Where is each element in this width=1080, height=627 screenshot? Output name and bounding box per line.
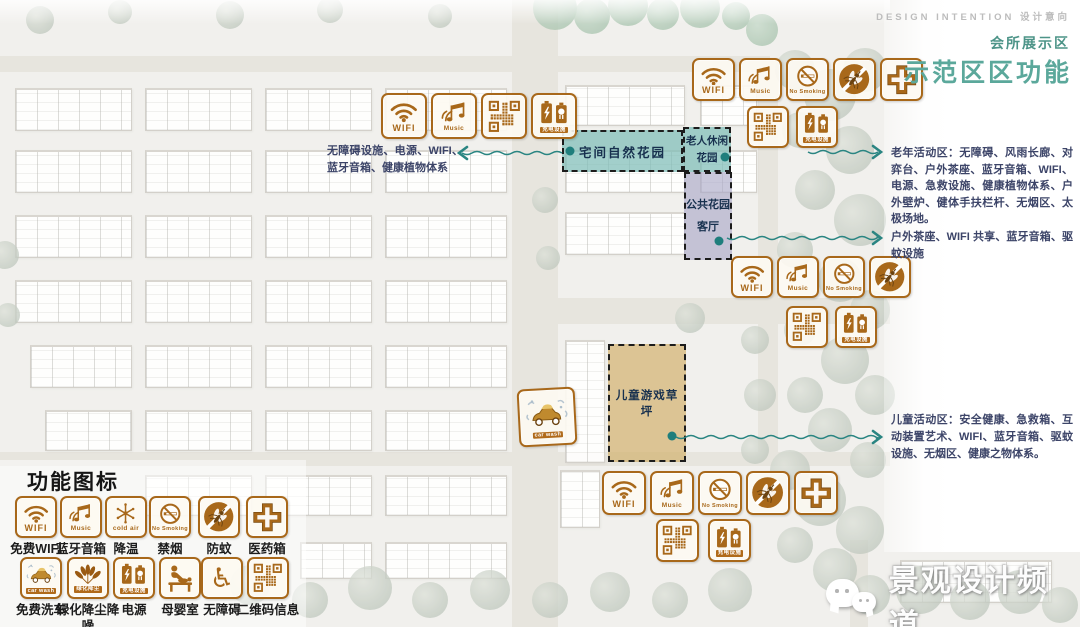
legend-label: 电源	[121, 603, 146, 619]
header-subtitle: 会所展示区	[990, 33, 1070, 53]
annotation-tea-wifi: 户外茶座、WIFI 共享、蓝牙音箱、驱蚊设施	[891, 229, 1073, 262]
mosquito-repellent-icon	[833, 58, 876, 101]
music-icon: Music	[739, 58, 782, 101]
wifi-icon: WIFI	[602, 471, 646, 515]
zone-elderly-garden-label: 老人休闲花园	[685, 133, 729, 167]
car-wash-icon: car wash	[517, 387, 578, 448]
icon-inner-label: car wash	[532, 431, 563, 439]
plan-icon-group-left: WIFIMusic充电设施	[381, 93, 577, 139]
icon-inner-label: 充电设施	[803, 137, 831, 143]
legend-label: 防蚊	[206, 542, 231, 558]
icon-inner-label: WIFI	[702, 86, 725, 96]
icon-inner-label: Music	[788, 285, 808, 292]
icon-inner-label: WIFI	[741, 284, 764, 294]
plan-icon-group-bottom: WIFIMusicNo Smoking	[602, 471, 838, 515]
legend-item: 二维码信息	[234, 557, 302, 619]
zone-children-lawn: 儿童游戏草坪	[608, 344, 686, 462]
page-title: 示范区区功能	[904, 53, 1072, 89]
charging-battery-icon: 充电设施	[835, 306, 877, 348]
icon-inner-label: No Smoking	[152, 526, 188, 532]
qr-code-icon	[481, 93, 527, 139]
icon-inner-label: No Smoking	[789, 89, 825, 95]
no-smoking-icon: No Smoking	[786, 58, 829, 101]
music-icon: Music	[777, 256, 819, 298]
legend-item: 医药箱	[233, 496, 301, 558]
qr-code-icon	[786, 306, 828, 348]
medical-cross-icon	[246, 496, 288, 538]
wifi-icon: WIFI	[731, 256, 773, 298]
header-design-intention: DESIGN INTENTION 设计意向	[876, 9, 1070, 23]
medical-cross-icon	[794, 471, 838, 515]
icon-inner-label: car wash	[26, 588, 57, 594]
wifi-icon: WIFI	[381, 93, 427, 139]
plan-icon-group-bottom-row2: 充电设施	[656, 519, 751, 562]
plan-icon-group-top-right: WIFIMusicNo Smoking	[692, 58, 923, 101]
zone-children-lawn-label: 儿童游戏草坪	[610, 387, 684, 419]
icon-inner-label: Music	[444, 125, 464, 132]
watermark: 景观设计频道	[826, 556, 1080, 627]
icon-inner-label: 充电设施	[716, 550, 744, 556]
icon-inner-label: WIFI	[25, 524, 48, 534]
annotation-elderly-zone: 老年活动区：无障碍、风雨长廊、对弈台、户外茶座、蓝牙音箱、WIFI、电源、急救设…	[891, 145, 1073, 228]
mosquito-repellent-icon	[869, 256, 911, 298]
charging-battery-icon: 充电设施	[708, 519, 751, 562]
icon-inner-label: No Smoking	[826, 286, 862, 292]
watermark-text: 景观设计频道	[889, 556, 1080, 627]
mosquito-repellent-icon	[746, 471, 790, 515]
annotation-children-zone: 儿童活动区：安全健康、急救箱、互动装置艺术、WIFI、蓝牙音箱、驱蚊设施、无烟区…	[891, 412, 1073, 463]
zone-elderly-garden: 老人休闲花园	[683, 127, 731, 172]
icon-inner-label: 充电设施	[540, 127, 568, 133]
icon-inner-label: Music	[662, 502, 682, 509]
qr-code-icon	[656, 519, 699, 562]
music-icon: Music	[431, 93, 477, 139]
icon-inner-label: 充电设施	[120, 588, 148, 594]
zone-home-garden: 宅间自然花园	[562, 130, 683, 172]
plan-icon-group-mid-right-row2: 充电设施	[786, 306, 877, 348]
zone-public-garden-label: 公共花园客厅	[686, 194, 730, 238]
legend-title: 功能图标	[27, 466, 119, 496]
icon-inner-label: 充电设施	[842, 337, 870, 343]
design-intention-plan: DESIGN INTENTION 设计意向 会所展示区 示范区区功能 宅间自然花…	[0, 0, 1080, 627]
no-smoking-icon: No Smoking	[698, 471, 742, 515]
qr-code-icon	[247, 557, 289, 599]
wechat-icon	[826, 577, 880, 623]
plan-icon-group-mid-right: WIFIMusicNo Smoking	[731, 256, 911, 298]
legend-label: 二维码信息	[237, 603, 300, 619]
icon-inner-label: WIFI	[393, 124, 416, 134]
icon-inner-label: 绿化降尘	[74, 586, 102, 592]
plan-icon-group-top-right-row2: 充电设施	[747, 106, 838, 148]
wifi-icon: WIFI	[692, 58, 735, 101]
charging-battery-icon: 充电设施	[796, 106, 838, 148]
zone-home-garden-label: 宅间自然花园	[579, 142, 666, 161]
icon-inner-label: No Smoking	[702, 503, 738, 509]
music-icon: Music	[650, 471, 694, 515]
annotation-home-garden: 无障碍设施、电源、WIFI、蓝牙音箱、健康植物体系	[327, 143, 463, 177]
top-fade	[0, 0, 890, 24]
legend-label: 禁烟	[157, 542, 182, 558]
icon-inner-label: Music	[71, 525, 91, 532]
no-smoking-icon: No Smoking	[823, 256, 865, 298]
legend-label: 医药箱	[248, 542, 286, 558]
qr-code-icon	[747, 106, 789, 148]
icon-inner-label: WIFI	[613, 500, 636, 510]
legend-label: 降温	[113, 542, 138, 558]
zone-public-garden: 公共花园客厅	[684, 172, 732, 260]
icon-inner-label: Music	[750, 88, 770, 95]
charging-battery-icon: 充电设施	[531, 93, 577, 139]
car-wash-badge: car wash	[517, 387, 578, 448]
